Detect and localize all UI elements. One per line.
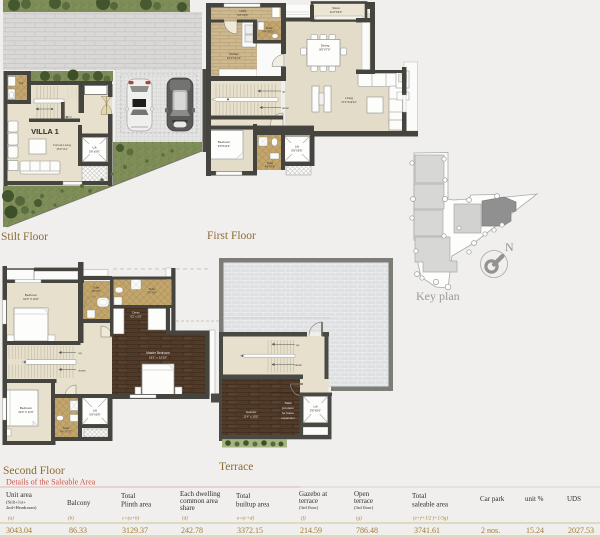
svg-text:VILLA 1: VILLA 1: [31, 127, 59, 136]
svg-text:Stilt Floor: Stilt Floor: [1, 231, 48, 243]
svg-text:(3rd floor): (3rd floor): [354, 505, 374, 510]
svg-text:11'4" x 10'0": 11'4" x 10'0": [243, 415, 258, 419]
svg-text:Key plan: Key plan: [416, 289, 460, 303]
svg-text:8'6"X7'6": 8'6"X7'6": [319, 48, 330, 52]
svg-text:Toilet: Toilet: [149, 287, 156, 291]
svg-text:10'1"X11'4": 10'1"X11'4": [227, 56, 241, 60]
svg-text:15'0"x14': 15'0"x14': [56, 147, 68, 151]
svg-text:builtup area: builtup area: [236, 501, 270, 509]
svg-text:(g): (g): [356, 517, 362, 522]
svg-text:Car park: Car park: [480, 495, 505, 503]
svg-text:3043.04: 3043.04: [6, 526, 32, 535]
svg-text:2nd+Headroom): 2nd+Headroom): [6, 505, 37, 510]
svg-text:Dress: Dress: [132, 311, 140, 315]
svg-text:Terrace: Terrace: [219, 461, 253, 473]
svg-text:2027.53: 2027.53: [568, 526, 594, 535]
svg-text:4'6" X 7'9": 4'6" X 7'9": [60, 430, 72, 434]
svg-text:Second Floor: Second Floor: [3, 465, 65, 477]
svg-text:Total: Total: [121, 492, 135, 500]
svg-text:Details of the Saleable Area: Details of the Saleable Area: [6, 478, 96, 487]
svg-text:Total: Total: [236, 492, 250, 500]
svg-text:c=(a+b): c=(a+b): [122, 517, 140, 522]
svg-text:214.59: 214.59: [300, 526, 322, 535]
svg-text:(d): (d): [182, 517, 188, 522]
svg-text:First Floor: First Floor: [207, 230, 256, 242]
svg-text:saleable area: saleable area: [412, 501, 449, 509]
svg-text:16'1" x 12'10": 16'1" x 12'10": [149, 356, 167, 360]
svg-text:(3rd floor): (3rd floor): [299, 505, 319, 510]
svg-text:terrace: terrace: [299, 497, 318, 505]
svg-text:N: N: [505, 240, 514, 254]
svg-text:6'2" x 5'9": 6'2" x 5'9": [130, 315, 141, 319]
svg-text:unit %: unit %: [525, 495, 544, 503]
svg-text:Unit area: Unit area: [6, 491, 33, 499]
svg-text:3741.61: 3741.61: [414, 526, 440, 535]
svg-text:(b): (b): [68, 517, 74, 522]
svg-text:242.78: 242.78: [181, 526, 203, 535]
svg-text:5'0" 8'9": 5'0" 8'9": [147, 291, 156, 295]
svg-text:2 nos.: 2 nos.: [481, 526, 500, 535]
svg-text:down: down: [79, 368, 87, 372]
svg-text:3'6" 6'0": 3'6" 6'0": [91, 289, 100, 293]
svg-text:Total: Total: [412, 492, 426, 500]
svg-text:Toilet: Toilet: [284, 401, 291, 405]
svg-text:(a): (a): [8, 517, 14, 522]
svg-text:UDS: UDS: [567, 495, 581, 503]
svg-text:down: down: [295, 363, 303, 367]
svg-text:share: share: [180, 504, 195, 512]
svg-text:(e+f+1/2 f+1/3g): (e+f+1/2 f+1/3g): [413, 517, 448, 522]
svg-text:Plinth area: Plinth area: [121, 501, 152, 509]
svg-text:down: down: [282, 106, 290, 110]
svg-text:11'0"X3'0": 11'0"X3'0": [330, 10, 343, 14]
svg-text:expansion: expansion: [281, 416, 295, 420]
svg-text:3372.15: 3372.15: [237, 526, 263, 535]
svg-text:up: up: [79, 351, 83, 355]
svg-text:15.24: 15.24: [526, 526, 544, 535]
svg-text:5'6"X5'6": 5'6"X5'6": [89, 413, 100, 417]
svg-text:5'6"X5'6": 5'6"X5'6": [310, 409, 321, 413]
svg-text:Toilet: Toilet: [63, 426, 70, 430]
svg-text:up: up: [296, 343, 300, 347]
svg-text:Toil: Toil: [19, 81, 24, 85]
svg-text:for future: for future: [282, 411, 294, 415]
svg-text:Balcony: Balcony: [67, 499, 91, 507]
svg-text:Toilet: Toilet: [266, 26, 273, 30]
svg-text:5'6"x5'6": 5'6"x5'6": [89, 150, 100, 154]
svg-text:Toilet: Toilet: [267, 161, 274, 165]
svg-text:9'6"X3'5": 9'6"X3'5": [237, 13, 248, 17]
svg-text:up: up: [282, 90, 286, 94]
svg-text:Master Bedroom: Master Bedroom: [146, 351, 170, 355]
svg-text:786.48: 786.48: [356, 526, 378, 535]
svg-text:(f): (f): [301, 517, 306, 522]
svg-text:9'0"X11'4": 9'0"X11'4": [218, 144, 231, 148]
svg-text:10'0" X 12'6": 10'0" X 12'6": [23, 297, 39, 301]
svg-text:provision: provision: [282, 406, 294, 410]
svg-text:terrace: terrace: [354, 497, 373, 505]
svg-text:Gazebo: Gazebo: [246, 410, 257, 414]
svg-text:4'4"X3'10": 4'4"X3'10": [263, 30, 275, 34]
svg-text:(Stilt+1st+: (Stilt+1st+: [6, 500, 26, 505]
svg-text:17'1"X12'11": 17'1"X12'11": [341, 100, 357, 104]
svg-text:3129.37: 3129.37: [122, 526, 148, 535]
svg-text:5'6"X5'6": 5'6"X5'6": [291, 149, 302, 153]
svg-text:e=(c+d): e=(c+d): [237, 517, 254, 522]
svg-text:86.33: 86.33: [69, 526, 87, 535]
svg-text:Toilet: Toilet: [93, 286, 100, 290]
svg-text:10'0" X 11'6": 10'0" X 11'6": [18, 410, 34, 414]
svg-text:4'6"X7'9": 4'6"X7'9": [265, 165, 275, 169]
